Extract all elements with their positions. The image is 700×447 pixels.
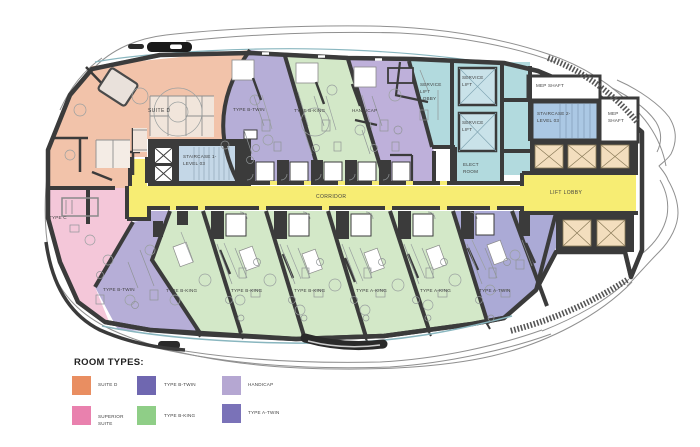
svg-text:TYPE B-TWIN: TYPE B-TWIN [233, 107, 265, 112]
svg-text:ROOM: ROOM [463, 169, 478, 174]
svg-text:MEP: MEP [608, 111, 619, 116]
svg-text:TYPE A-KING: TYPE A-KING [420, 288, 451, 293]
svg-text:LIFT LOBBY: LIFT LOBBY [550, 190, 583, 196]
svg-text:LIFT: LIFT [462, 82, 472, 87]
svg-text:HANDICAP: HANDICAP [352, 108, 377, 113]
svg-text:TYPE B-KING: TYPE B-KING [231, 288, 263, 293]
svg-text:TYPE B-TWIN: TYPE B-TWIN [164, 382, 196, 387]
svg-text:TYPE B-TWIN: TYPE B-TWIN [103, 287, 135, 292]
svg-text:LIFT: LIFT [420, 89, 430, 94]
svg-text:LEVEL 03: LEVEL 03 [183, 161, 205, 166]
svg-text:SUITE: SUITE [98, 421, 113, 426]
svg-text:LOBBY: LOBBY [420, 96, 436, 101]
svg-text:SERVICE: SERVICE [462, 120, 483, 125]
svg-text:SUPERIOR: SUPERIOR [98, 414, 124, 419]
svg-text:TYPE C: TYPE C [49, 215, 67, 220]
svg-text:STAIRCASE 1-: STAIRCASE 1- [183, 154, 217, 159]
svg-text:SHAFT: SHAFT [608, 118, 624, 123]
svg-text:CORRIDOR: CORRIDOR [316, 194, 346, 200]
svg-text:SUITE D: SUITE D [148, 108, 171, 114]
svg-text:HANDICAP: HANDICAP [248, 382, 273, 387]
svg-text:SUITE D: SUITE D [98, 382, 118, 387]
svg-text:SERVICE: SERVICE [420, 82, 441, 87]
svg-text:TYPE B-KING: TYPE B-KING [294, 108, 326, 113]
svg-text:MEP SHAFT: MEP SHAFT [536, 83, 564, 88]
svg-text:TYPE A-TWIN: TYPE A-TWIN [248, 410, 280, 415]
svg-text:TYPE A-KING: TYPE A-KING [356, 288, 387, 293]
svg-text:TYPE A-TWIN: TYPE A-TWIN [479, 288, 511, 293]
svg-text:LIFT: LIFT [462, 127, 472, 132]
svg-text:ELECT: ELECT [463, 162, 479, 167]
svg-text:STAIRCASE 2-: STAIRCASE 2- [537, 111, 571, 116]
svg-text:TYPE B-KING: TYPE B-KING [166, 288, 198, 293]
svg-text:SERVICE: SERVICE [462, 75, 483, 80]
svg-text:ROOM TYPES:: ROOM TYPES: [74, 357, 144, 368]
svg-text:TYPE B-KING: TYPE B-KING [294, 288, 326, 293]
svg-text:LEVEL 03: LEVEL 03 [537, 118, 559, 123]
svg-text:TYPE B-KING: TYPE B-KING [164, 413, 196, 418]
